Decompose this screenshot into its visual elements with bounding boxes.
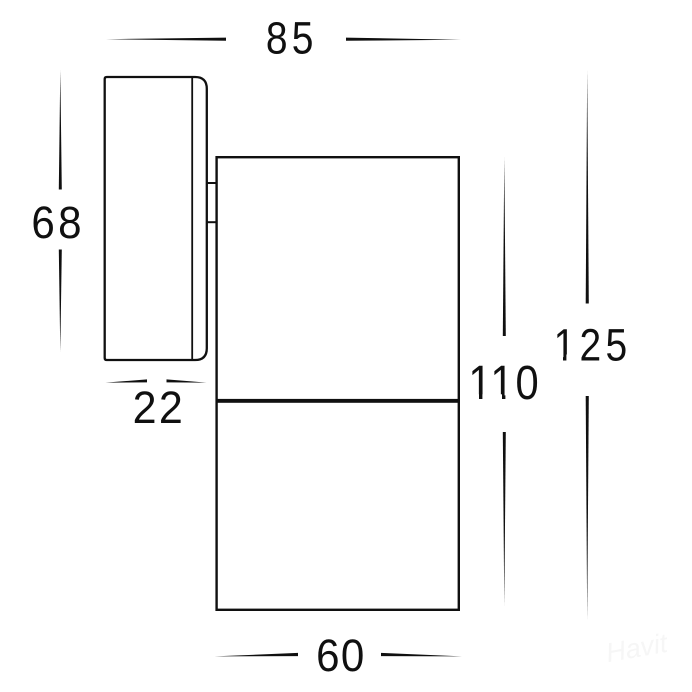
svg-text:60: 60 [316,631,366,682]
svg-text:68: 68 [31,197,84,248]
svg-text:110: 110 [468,355,540,410]
svg-text:22: 22 [133,383,186,433]
svg-text:125: 125 [554,320,632,370]
svg-text:85: 85 [266,13,318,63]
